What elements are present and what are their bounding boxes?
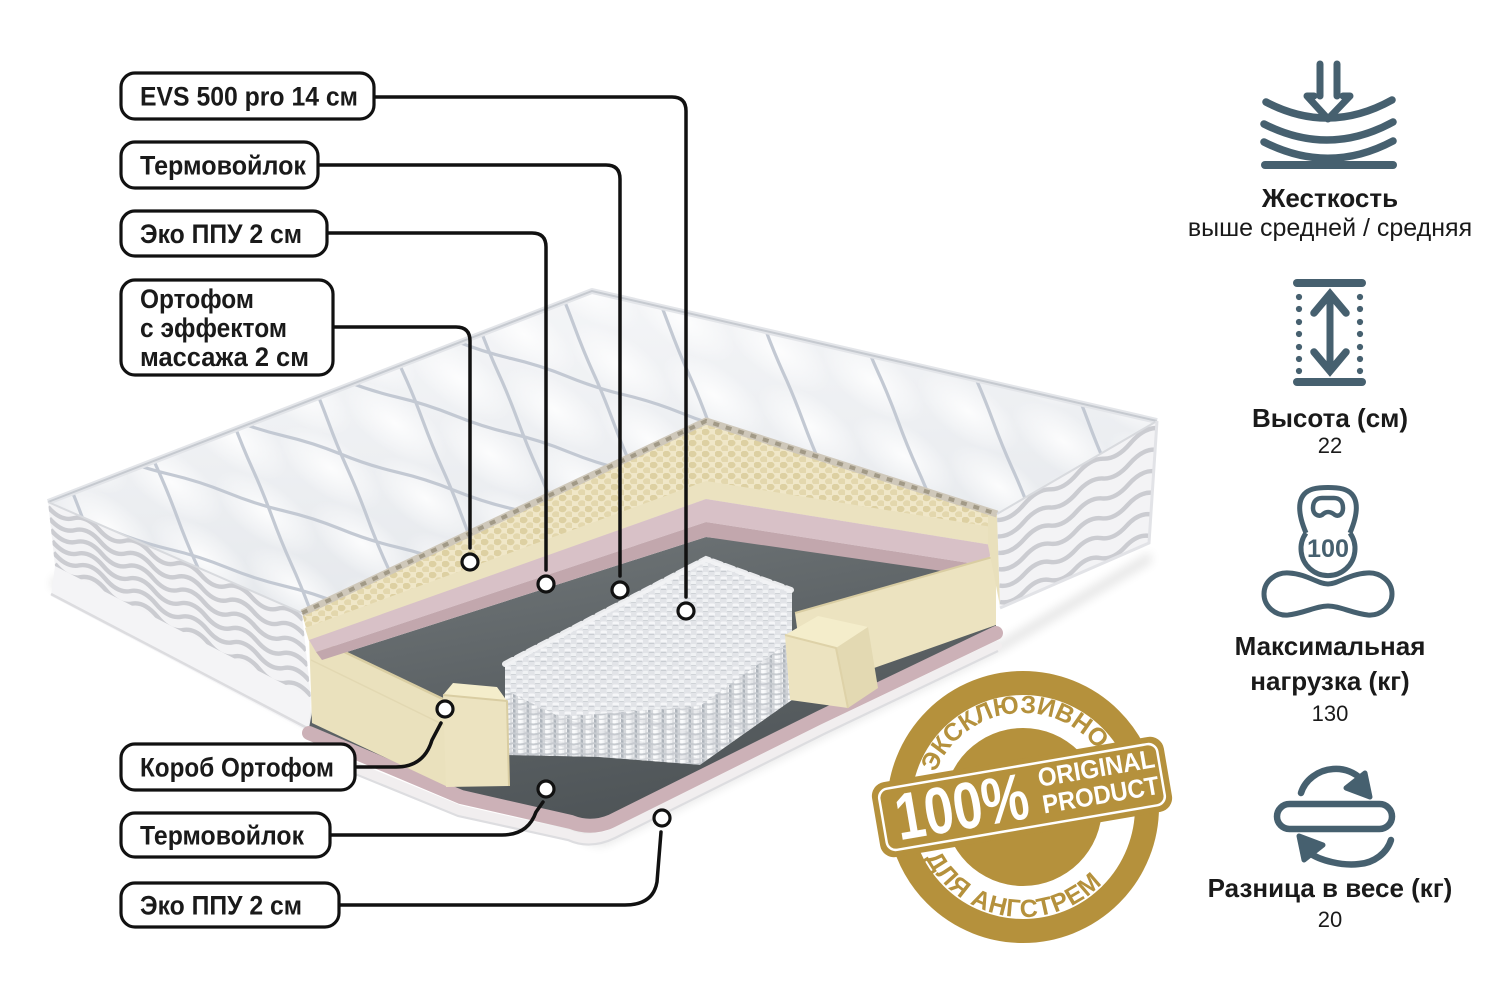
svg-text:Жесткость: Жесткость [1261, 183, 1398, 213]
svg-text:выше средней / средняя: выше средней / средняя [1188, 214, 1472, 242]
svg-text:массажа 2 см: массажа 2 см [140, 342, 309, 372]
svg-text:Максимальная: Максимальная [1235, 631, 1426, 661]
svg-text:Эко ППУ 2 см: Эко ППУ 2 см [140, 219, 302, 249]
svg-text:22: 22 [1318, 433, 1342, 458]
svg-text:Разница в весе (кг): Разница в весе (кг) [1208, 873, 1453, 903]
svg-text:нагрузка (кг): нагрузка (кг) [1250, 666, 1409, 696]
svg-text:Короб Ортофом: Короб Ортофом [140, 753, 334, 783]
svg-text:с эффектом: с эффектом [140, 313, 287, 343]
svg-text:EVS 500 pro 14 см: EVS 500 pro 14 см [140, 82, 358, 112]
svg-text:Эко ППУ 2 см: Эко ППУ 2 см [140, 891, 302, 921]
svg-text:100: 100 [1307, 535, 1349, 563]
svg-text:Термовойлок: Термовойлок [140, 151, 306, 181]
svg-text:20: 20 [1318, 907, 1342, 932]
svg-text:Ортофом: Ортофом [140, 284, 254, 314]
svg-text:Высота (см): Высота (см) [1252, 403, 1408, 433]
svg-text:Термовойлок: Термовойлок [140, 821, 304, 851]
svg-text:130: 130 [1312, 701, 1349, 726]
